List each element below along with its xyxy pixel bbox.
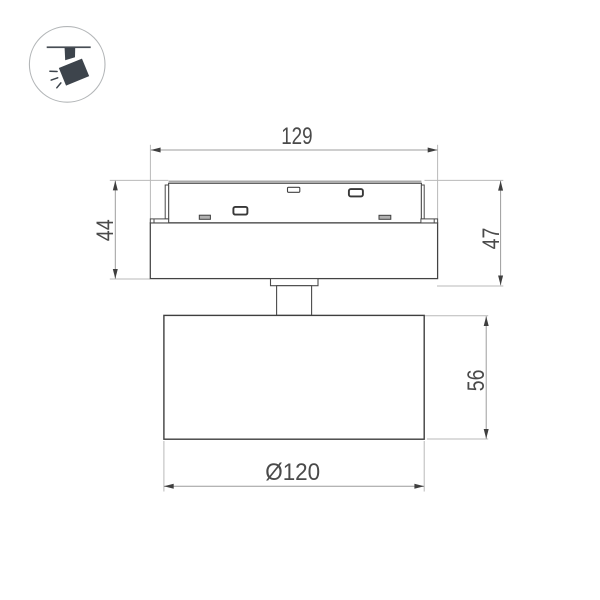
svg-text:56: 56 bbox=[462, 370, 490, 392]
svg-text:129: 129 bbox=[281, 122, 312, 150]
svg-text:47: 47 bbox=[477, 228, 505, 250]
svg-text:44: 44 bbox=[91, 219, 118, 241]
svg-text:Ø120: Ø120 bbox=[265, 458, 320, 485]
